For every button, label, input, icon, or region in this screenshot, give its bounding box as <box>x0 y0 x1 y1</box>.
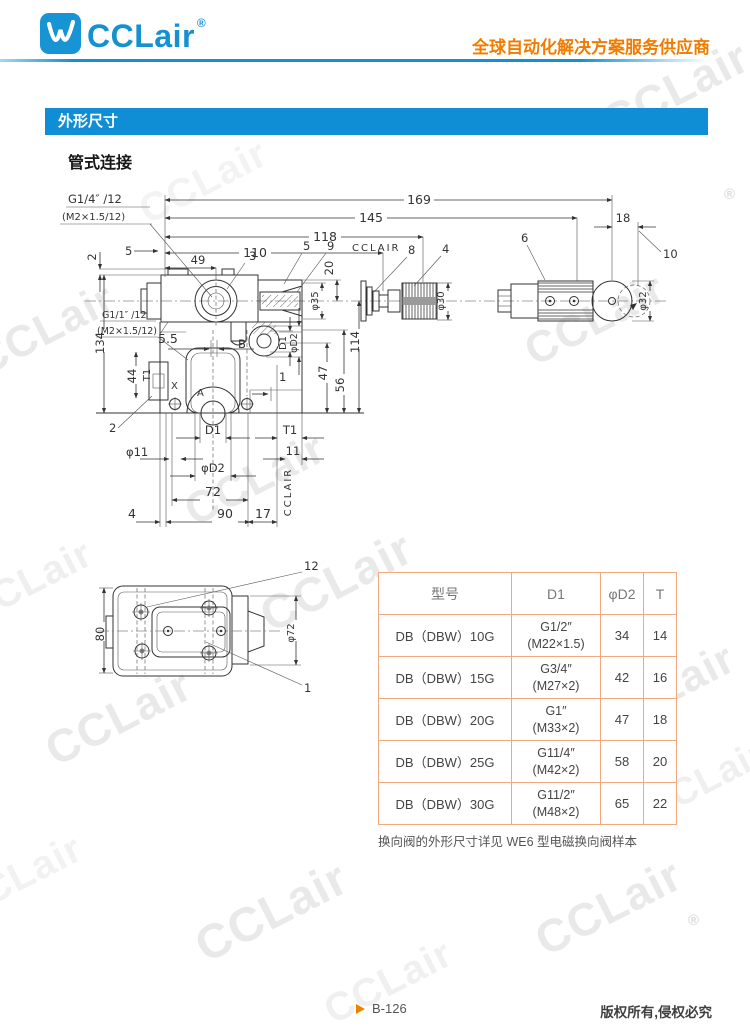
port-label-b: B <box>238 337 246 351</box>
logo-swoosh-icon <box>40 13 81 54</box>
cell-phid2: 47 <box>601 699 644 741</box>
reference-note: 换向阀的外形尺寸详见 WE6 型电磁换向阀样本 <box>378 831 637 850</box>
dim-label-72: 72 <box>205 484 221 499</box>
cell-d1-metric: (M22×1.5) <box>516 636 596 652</box>
dim-label-phi32: φ32 <box>638 291 649 310</box>
cell-phid2: 58 <box>601 741 644 783</box>
table-row: DB（DBW）25G G11/4″ (M42×2) 58 20 <box>379 741 677 783</box>
cclair-logo-icon <box>40 13 81 54</box>
table-row: DB（DBW）30G G11/2″ (M48×2) 65 22 <box>379 783 677 825</box>
dim-label-g14a: G1/4″ /12 <box>68 192 122 206</box>
dim-label-56: 56 <box>333 378 347 393</box>
dim-label-18: 18 <box>616 211 631 225</box>
dim-label-phi30: φ30 <box>436 291 447 310</box>
dim-label-phi35: φ35 <box>310 291 321 310</box>
callout-12: 12 <box>304 559 319 573</box>
col-header-t: T <box>644 573 677 615</box>
col-header-phid2: φD2 <box>601 573 644 615</box>
dim-label-80: 80 <box>93 627 107 642</box>
callout-6: 6 <box>521 231 528 245</box>
cell-phid2: 65 <box>601 783 644 825</box>
page-number-label: B-126 <box>372 1001 407 1016</box>
section-banner: 外形尺寸 <box>45 108 708 135</box>
copyright-notice: 版权所有,侵权必究 <box>600 1001 712 1021</box>
header-divider <box>0 59 724 62</box>
dim-label-d1-bottom: D1 <box>205 423 221 437</box>
callout-9: 9 <box>327 239 334 253</box>
dim-label-phid2-bottom: φD2 <box>201 461 225 475</box>
cell-t: 14 <box>644 615 677 657</box>
col-header-d1: D1 <box>512 573 601 615</box>
cell-t: 16 <box>644 657 677 699</box>
dim-label-44: 44 <box>125 369 139 384</box>
dim-label-114: 114 <box>348 331 362 353</box>
cell-d1-metric: (M27×2) <box>516 678 596 694</box>
dim-label-49: 49 <box>191 253 206 267</box>
cell-d1: G1″ (M33×2) <box>512 699 601 741</box>
port-label-x: X <box>171 381 178 392</box>
dim-label-4: 4 <box>128 506 136 521</box>
cell-model: DB（DBW）30G <box>379 783 512 825</box>
cell-d1: G11/2″ (M48×2) <box>512 783 601 825</box>
dimensions-spec-table: 型号 D1 φD2 T DB（DBW）10G G1/2″ (M22×1.5) 3… <box>378 572 677 825</box>
cclair-logo: CCLair ® <box>40 13 206 59</box>
table-row: DB（DBW）15G G3/4″ (M27×2) 42 16 <box>379 657 677 699</box>
dim-label-t1-bottom: T1 <box>282 423 297 437</box>
cell-model: DB（DBW）25G <box>379 741 512 783</box>
cell-d1-metric: (M48×2) <box>516 804 596 820</box>
cell-d1-thread: G1″ <box>516 703 596 719</box>
port-label-t1-left: T1 <box>142 369 153 382</box>
callout-4: 4 <box>442 242 449 256</box>
cell-d1-thread: G3/4″ <box>516 661 596 677</box>
cell-t: 22 <box>644 783 677 825</box>
dim-label-phid2-vertical: φD2 <box>289 333 300 353</box>
dim-label-5-5: 5.5 <box>158 331 178 346</box>
dim-label-47: 47 <box>316 366 330 381</box>
dim-label-g11a: G1/1″ /12 <box>102 310 147 321</box>
dim-label-20: 20 <box>322 261 336 276</box>
dim-label-d1-vertical: D1 <box>278 336 289 350</box>
port-label-a: A <box>197 388 204 399</box>
cell-d1-thread: G11/4″ <box>516 745 596 761</box>
dim-label-2: 2 <box>85 253 99 260</box>
company-tagline: 全球自动化解决方案服务供应商 <box>472 33 710 58</box>
logo-wordmark: CCLair <box>87 13 195 59</box>
cell-d1: G11/4″ (M42×2) <box>512 741 601 783</box>
cell-model: DB（DBW）20G <box>379 699 512 741</box>
cell-model: DB（DBW）10G <box>379 615 512 657</box>
logo-registered-mark: ® <box>197 13 206 33</box>
cell-d1-metric: (M33×2) <box>516 720 596 736</box>
table-header-row: 型号 D1 φD2 T <box>379 573 677 615</box>
page-marker-triangle-icon <box>356 1004 365 1014</box>
cclair-stamp: CCLAIR <box>352 243 401 254</box>
cell-t: 18 <box>644 699 677 741</box>
dim-label-134: 134 <box>93 332 107 354</box>
dim-label-1-step: 1 <box>279 370 286 384</box>
dim-label-145: 145 <box>359 210 383 225</box>
dim-label-g14b: (M2×1.5/12) <box>62 212 125 223</box>
callout-3: 3 <box>249 249 256 263</box>
callout-8: 8 <box>408 243 415 257</box>
col-header-model: 型号 <box>379 573 512 615</box>
callout-1-bottom: 1 <box>304 681 311 695</box>
callout-2-lower: 2 <box>109 421 116 435</box>
cell-d1-thread: G11/2″ <box>516 787 596 803</box>
cell-model: DB（DBW）15G <box>379 657 512 699</box>
callout-5: 5 <box>303 239 310 253</box>
callout-10: 10 <box>663 247 678 261</box>
cell-d1: G3/4″ (M27×2) <box>512 657 601 699</box>
dim-label-90: 90 <box>217 506 233 521</box>
table-row: DB（DBW）20G G1″ (M33×2) 47 18 <box>379 699 677 741</box>
cell-phid2: 42 <box>601 657 644 699</box>
bottom-view <box>98 572 302 685</box>
cell-phid2: 34 <box>601 615 644 657</box>
page-number: B-126 <box>356 1001 407 1016</box>
cclair-stamp-vertical: CCLAIR <box>283 468 294 517</box>
cell-t: 20 <box>644 741 677 783</box>
cell-d1-thread: G1/2″ <box>516 619 596 635</box>
dim-label-17: 17 <box>255 506 271 521</box>
cell-d1-metric: (M42×2) <box>516 762 596 778</box>
connection-type-subtitle: 管式连接 <box>68 149 132 173</box>
dim-label-11: 11 <box>286 444 301 458</box>
cell-d1: G1/2″ (M22×1.5) <box>512 615 601 657</box>
dim-label-5: 5 <box>125 244 132 258</box>
dim-label-phi72: φ72 <box>286 623 297 642</box>
table-row: DB（DBW）10G G1/2″ (M22×1.5) 34 14 <box>379 615 677 657</box>
dim-label-169: 169 <box>407 192 431 207</box>
dim-label-phi11: φ11 <box>126 445 148 459</box>
